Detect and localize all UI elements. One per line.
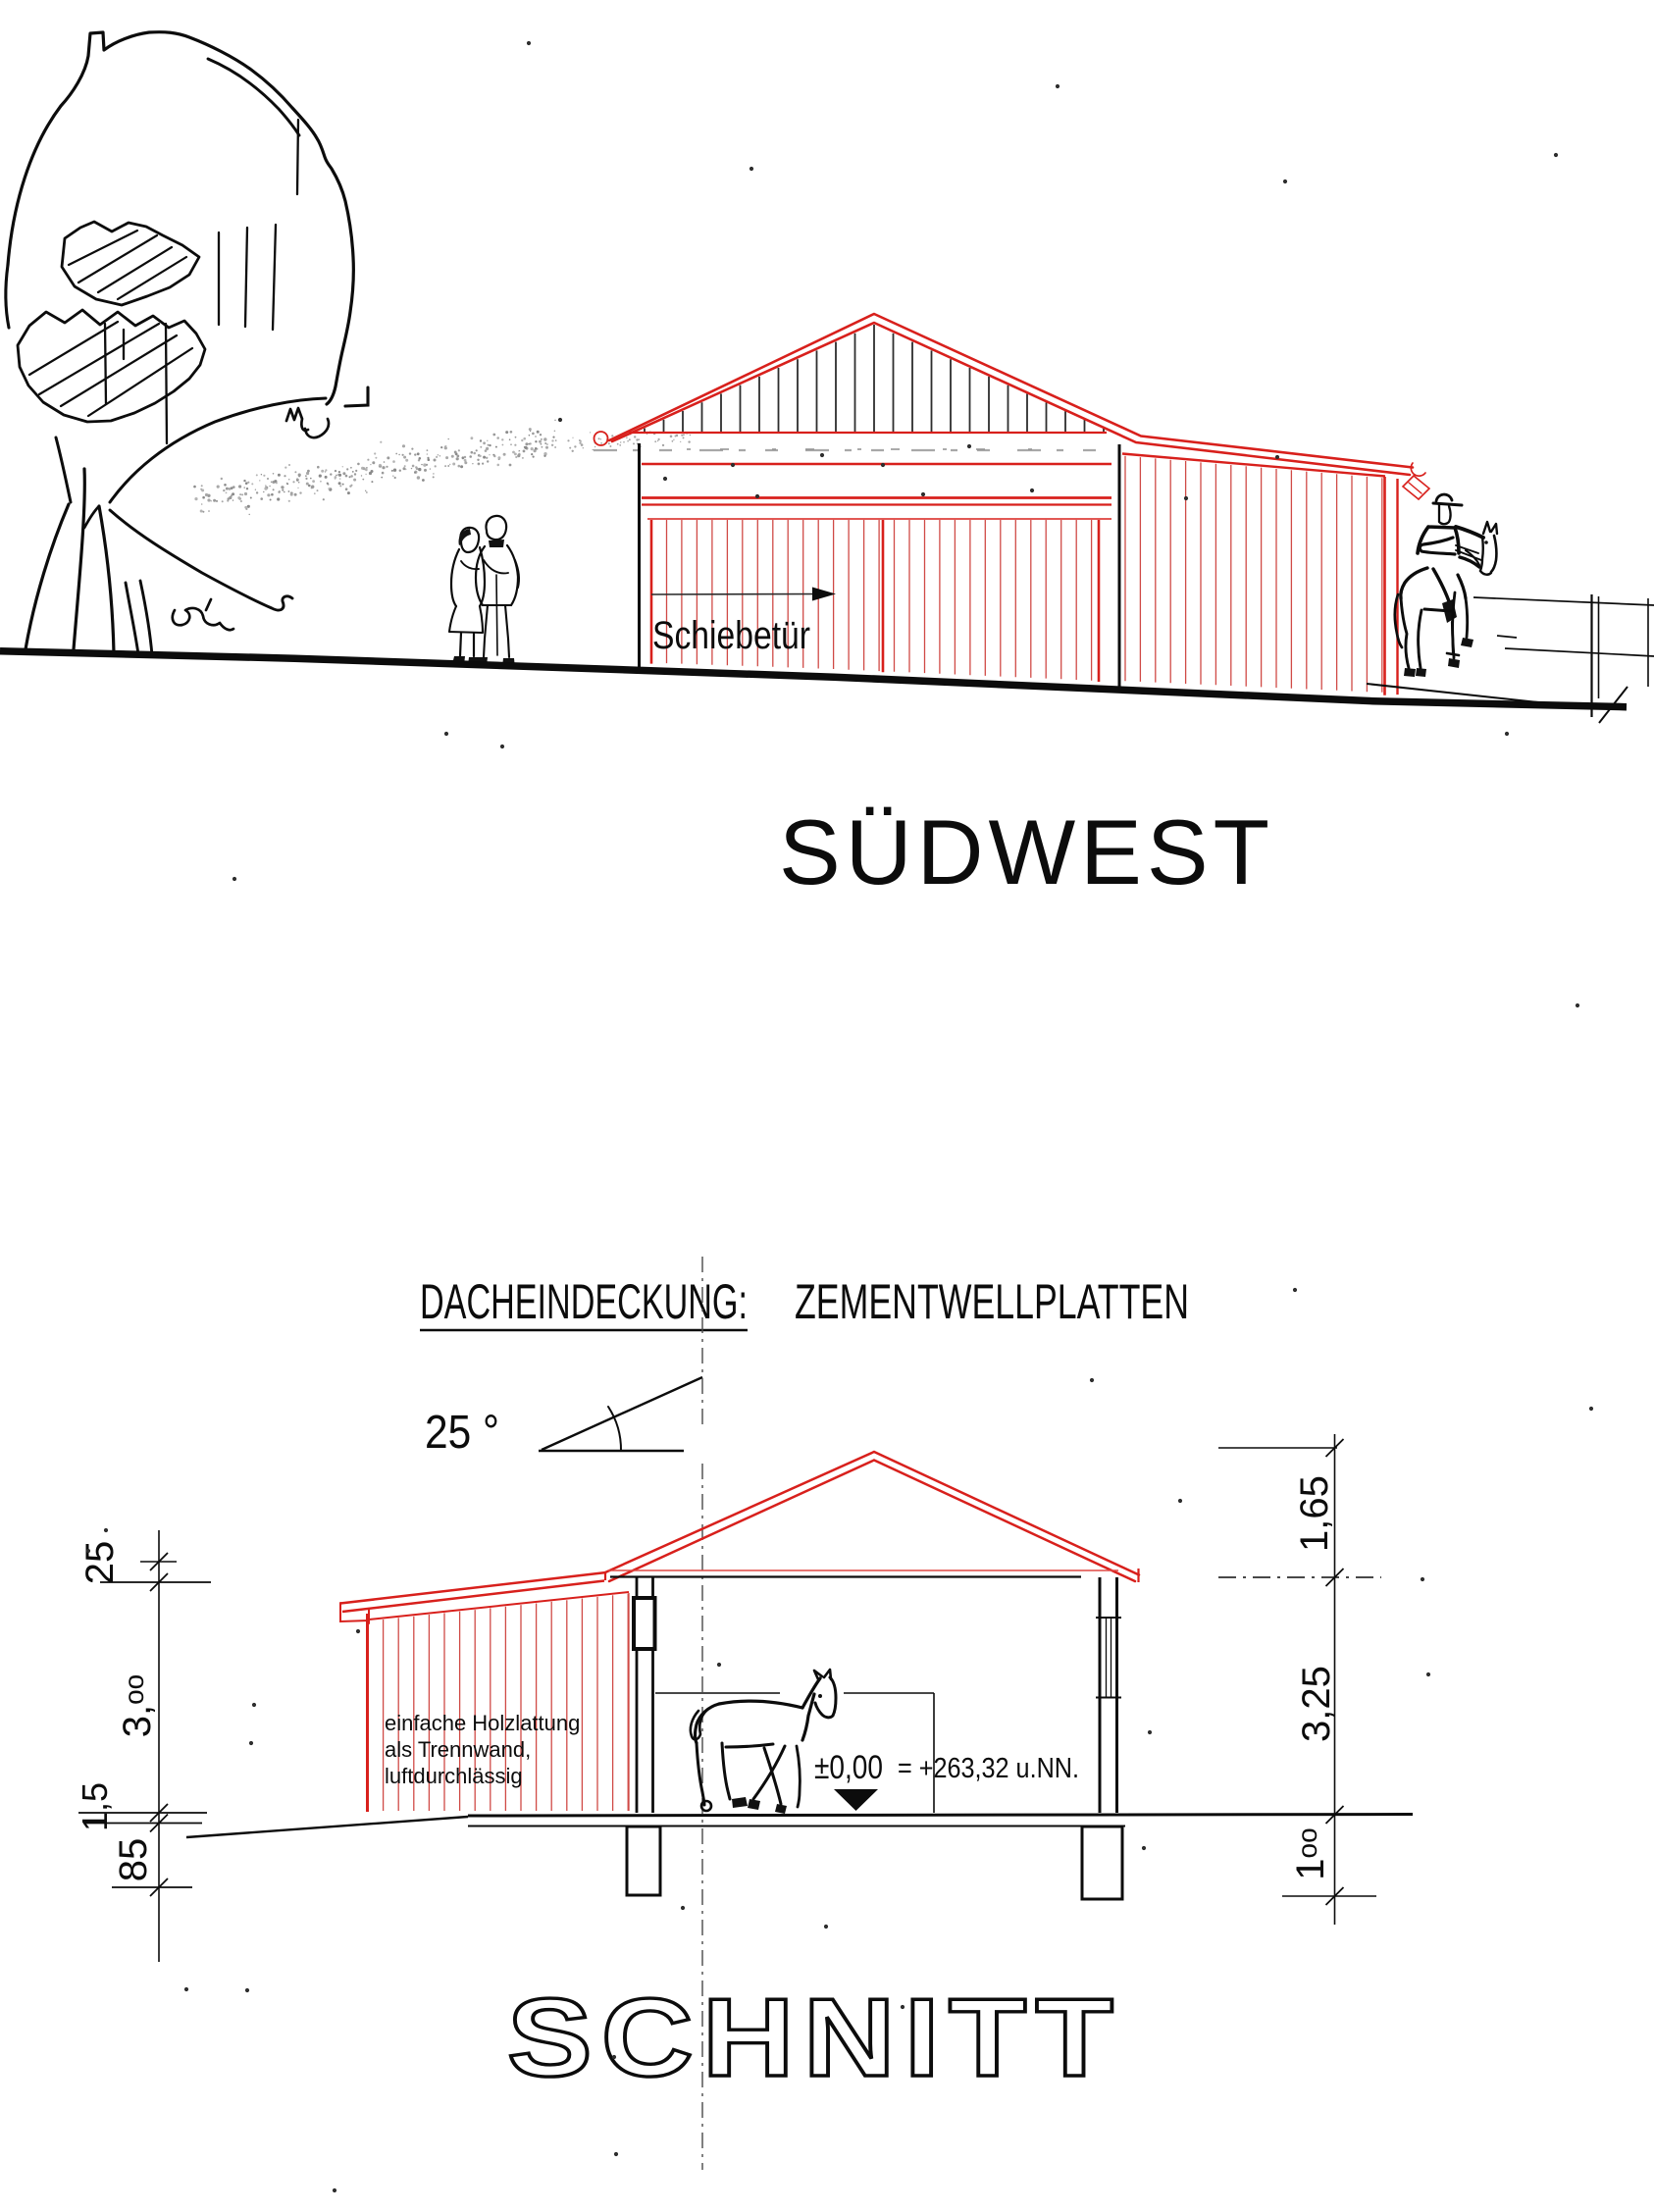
svg-text:DACHEINDECKUNG:: DACHEINDECKUNG: bbox=[420, 1274, 748, 1329]
svg-text:einfache Holzlattung: einfache Holzlattung bbox=[385, 1711, 580, 1735]
svg-text:25 °: 25 ° bbox=[425, 1407, 499, 1459]
svg-text:SÜDWEST: SÜDWEST bbox=[779, 800, 1274, 903]
svg-text:3,25: 3,25 bbox=[1295, 1666, 1338, 1742]
svg-text:Schiebetür: Schiebetür bbox=[652, 614, 810, 657]
svg-text:ZEMENTWELLPLATTEN: ZEMENTWELLPLATTEN bbox=[795, 1274, 1189, 1329]
svg-text:1,65: 1,65 bbox=[1293, 1475, 1336, 1552]
svg-text:SCHNITT: SCHNITT bbox=[507, 1976, 1122, 2099]
svg-text:als Trennwand,: als Trennwand, bbox=[385, 1737, 531, 1762]
svg-text:85: 85 bbox=[112, 1838, 155, 1882]
svg-text:= +263,32 u.NN.: = +263,32 u.NN. bbox=[898, 1753, 1079, 1784]
svg-text:3,oo: 3,oo bbox=[116, 1674, 159, 1738]
svg-text:±0,00: ±0,00 bbox=[814, 1749, 883, 1786]
svg-text:luftdurchlässig: luftdurchlässig bbox=[385, 1764, 523, 1788]
svg-text:1,5: 1,5 bbox=[75, 1782, 115, 1831]
svg-text:1oo: 1oo bbox=[1289, 1827, 1332, 1879]
svg-text:25: 25 bbox=[78, 1541, 122, 1585]
